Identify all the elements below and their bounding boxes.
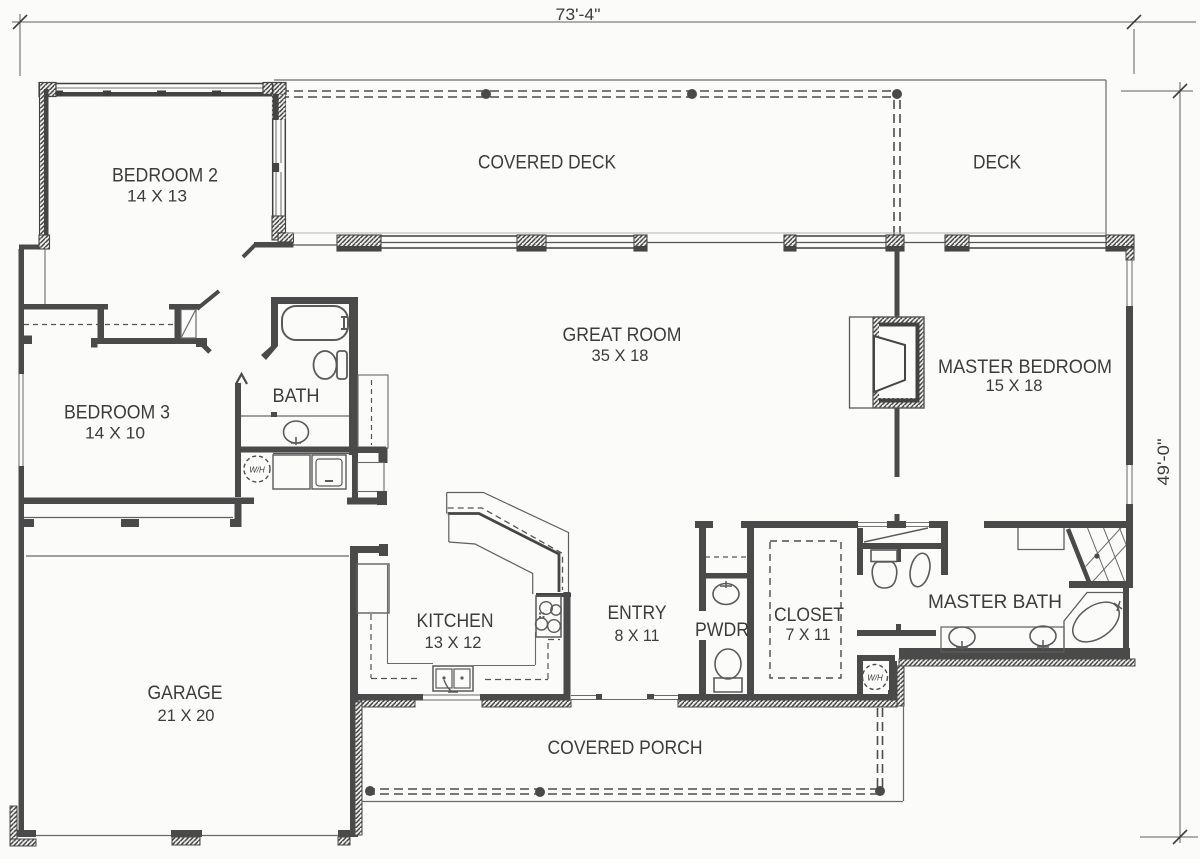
svg-text:GREAT ROOM: GREAT ROOM [563,325,682,346]
svg-text:W/H: W/H [867,674,883,683]
svg-text:GARAGE: GARAGE [148,683,223,704]
svg-text:CLOSET: CLOSET [774,605,844,626]
svg-text:35 X 18: 35 X 18 [592,346,649,365]
svg-text:ENTRY: ENTRY [608,603,667,624]
svg-text:14 X 13: 14 X 13 [127,187,187,206]
svg-text:MASTER BATH: MASTER BATH [928,592,1062,613]
svg-text:73'-4": 73'-4" [556,5,601,24]
svg-text:COVERED DECK: COVERED DECK [478,153,616,174]
svg-text:15 X 18: 15 X 18 [986,376,1043,395]
svg-text:8 X 11: 8 X 11 [615,626,660,645]
svg-text:7 X 11: 7 X 11 [786,625,831,644]
svg-text:49'-0": 49'-0" [1154,439,1173,486]
svg-text:21 X 20: 21 X 20 [158,706,215,725]
svg-text:BEDROOM 3: BEDROOM 3 [64,403,170,424]
svg-text:W/H: W/H [249,466,265,475]
svg-text:KITCHEN: KITCHEN [417,611,494,632]
svg-text:DECK: DECK [973,153,1021,174]
svg-text:BEDROOM 2: BEDROOM 2 [112,166,218,187]
svg-text:13 X 12: 13 X 12 [425,633,482,652]
svg-text:BATH: BATH [273,386,320,407]
svg-text:14 X 10: 14 X 10 [85,424,145,443]
svg-text:PWDR: PWDR [695,620,749,641]
svg-text:COVERED PORCH: COVERED PORCH [548,738,703,759]
svg-text:MASTER BEDROOM: MASTER BEDROOM [938,357,1112,378]
